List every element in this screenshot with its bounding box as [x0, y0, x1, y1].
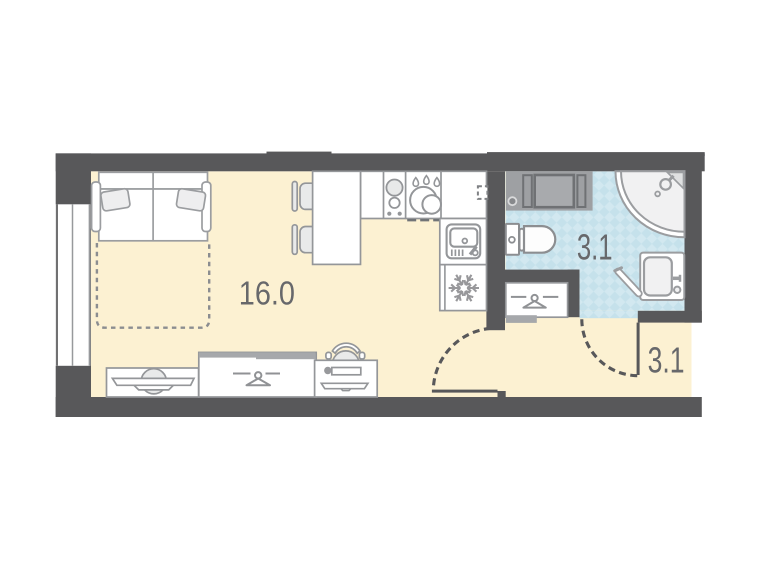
svg-text:16.0: 16.0	[239, 274, 295, 311]
svg-text:3.1: 3.1	[648, 340, 685, 381]
svg-text:3.1: 3.1	[577, 226, 613, 267]
